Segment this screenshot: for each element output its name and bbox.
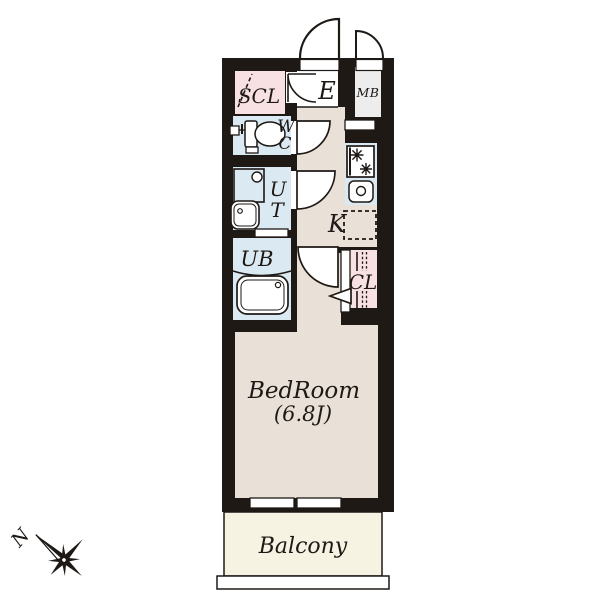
bedroom-size-label: (6.8J)	[274, 402, 332, 426]
ut-ub-sliding-door	[255, 229, 288, 237]
balcony-railing	[217, 576, 389, 589]
meter-box-label: MB	[356, 85, 380, 100]
kitchen-window	[345, 120, 375, 130]
bedroom-label: BedRoom	[247, 378, 360, 404]
balcony-label: Balcony	[258, 534, 348, 559]
wc-label-line2: C	[278, 134, 291, 154]
closet-label: CL	[349, 270, 378, 294]
entrance-label: E	[317, 77, 336, 105]
wall-ub-bottom	[222, 320, 297, 332]
stove-burners-icon	[347, 146, 374, 177]
floor-plan-canvas: SCL E MB W C U T K UB CL BedRoom (6.8J) …	[0, 0, 600, 600]
bedroom-window-left	[250, 498, 294, 508]
floor-plan-svg: SCL E MB W C U T K UB CL BedRoom (6.8J) …	[0, 0, 600, 600]
bedroom-window-right	[297, 498, 341, 508]
kitchen-label: K	[327, 210, 348, 238]
ut-label-line2: T	[270, 198, 285, 222]
meter-box-doorway-opening	[356, 60, 383, 71]
entrance-doorway-opening	[300, 60, 339, 71]
vanity-sink-icon	[231, 201, 259, 229]
burner-2	[360, 163, 372, 175]
unit-bath-label: UB	[240, 247, 273, 271]
kitchen-sink-icon	[349, 181, 373, 202]
bathtub-icon	[233, 271, 291, 314]
scl-door-arc-icon	[286, 72, 317, 103]
scl-label: SCL	[238, 84, 280, 108]
burner-1	[351, 149, 364, 162]
